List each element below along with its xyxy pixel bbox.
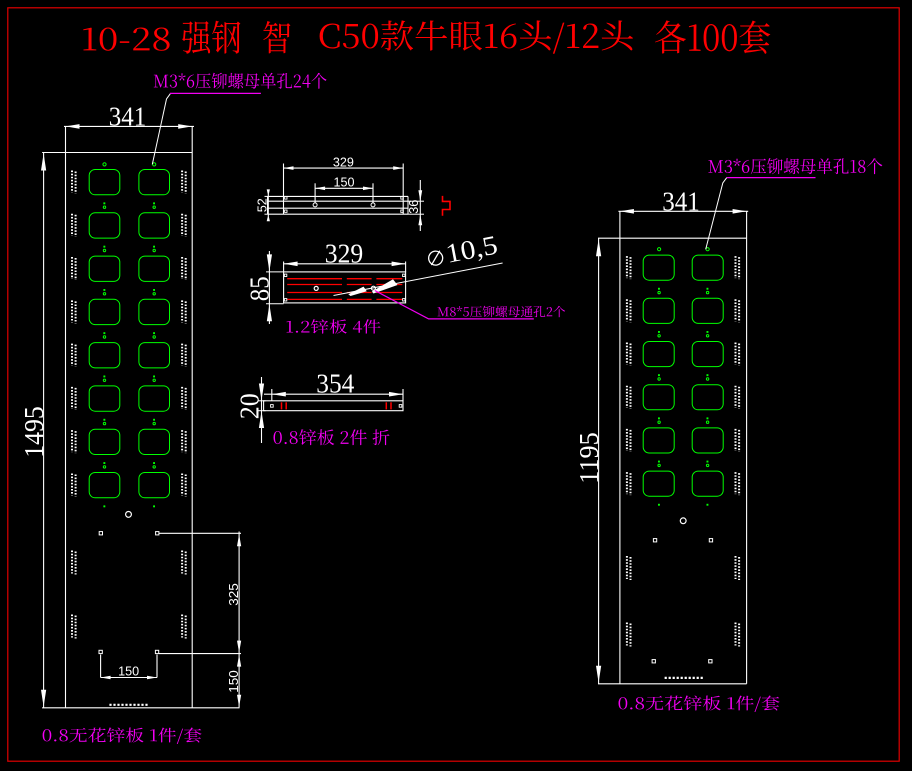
svg-text:329: 329 [325,239,364,269]
svg-text:1495: 1495 [19,406,49,458]
svg-text:52: 52 [255,198,270,212]
svg-text:354: 354 [316,369,354,399]
svg-text:10,5: 10,5 [443,229,500,268]
svg-text:341: 341 [662,186,700,216]
svg-text:20: 20 [235,393,265,419]
svg-text:150: 150 [118,664,139,679]
svg-text:150: 150 [226,670,241,693]
svg-text:36: 36 [406,200,421,214]
svg-text:1195: 1195 [574,432,604,484]
svg-text:85: 85 [244,276,274,301]
svg-text:150: 150 [334,175,355,190]
svg-text:325: 325 [226,583,241,606]
svg-text:341: 341 [109,102,147,132]
svg-text:329: 329 [333,154,354,169]
